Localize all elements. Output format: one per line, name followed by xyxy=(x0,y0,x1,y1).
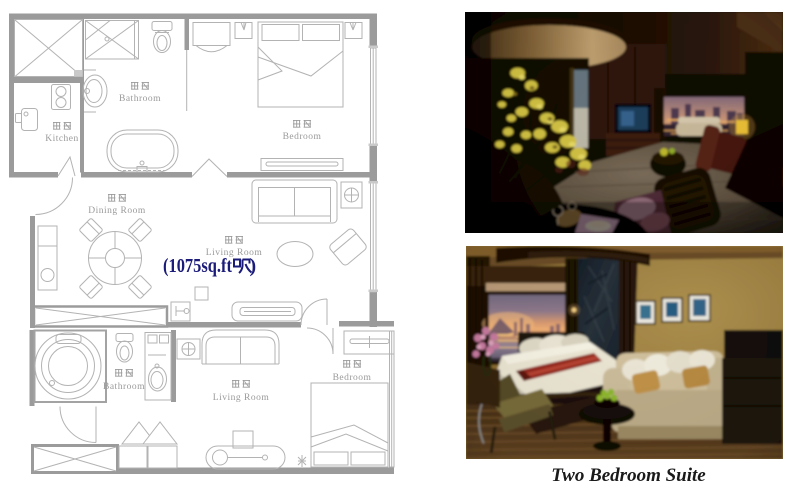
svg-text:Bedroom: Bedroom xyxy=(283,132,322,142)
svg-text:Bedroom: Bedroom xyxy=(333,373,372,383)
svg-text:(1075sq.ft: (1075sq.ft xyxy=(163,255,232,277)
svg-text:Bathroom: Bathroom xyxy=(103,382,145,392)
svg-text:Dining Room: Dining Room xyxy=(88,206,146,216)
svg-text:Kitchen: Kitchen xyxy=(45,134,79,144)
svg-text:Bathroom: Bathroom xyxy=(119,94,161,104)
svg-text:Living Room: Living Room xyxy=(213,393,270,403)
svg-text:): ) xyxy=(250,255,257,277)
